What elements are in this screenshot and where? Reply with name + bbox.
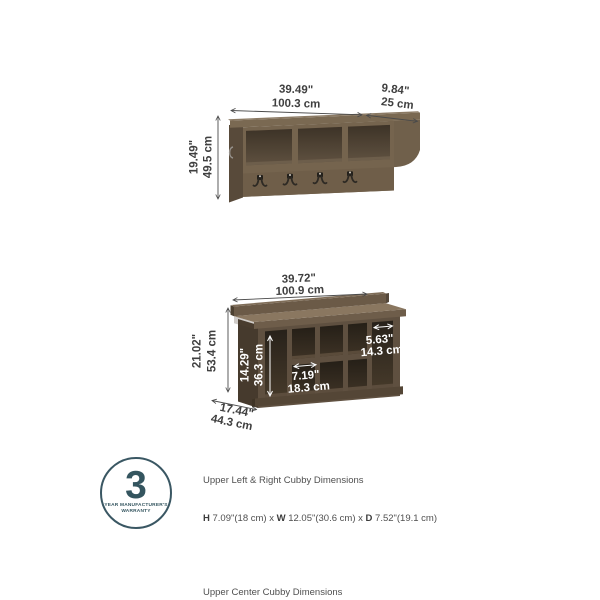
shelf-cubby-right — [348, 125, 390, 161]
shelf-depth-cm: 25 cm — [380, 96, 414, 112]
shelf-back-panel-extension — [394, 120, 420, 167]
shelf-width-dim-line — [231, 111, 362, 115]
spec-detail: H 7.09"(18 cm) x W 12.05"(30.6 cm) x D 7… — [203, 513, 437, 526]
spec-h-label: H — [203, 513, 210, 524]
warranty-years: 3 — [125, 469, 147, 502]
bench-cubby-left-tall — [265, 330, 287, 399]
spec-upper-left-right-cubby: Upper Left & Right Cubby Dimensions H 7.… — [203, 450, 437, 550]
bench-cubby-top-1 — [292, 327, 315, 359]
bench-back-rail-right-cap — [386, 293, 389, 303]
bench-height-cm: 53.4 cm — [207, 330, 219, 372]
bench-cubby-top-2 — [320, 325, 343, 357]
cubby-specifications: Upper Left & Right Cubby Dimensions H 7.… — [203, 450, 437, 600]
warranty-text-line2: WARRANTY — [121, 509, 150, 515]
shelf-side-panel — [229, 124, 243, 203]
bench-height-inches: 21.02" — [192, 334, 204, 368]
product-dimension-diagram: 39.49" 100.3 cm 9.84" 25 cm 19.49" 49.5 … — [0, 0, 600, 600]
shelf-height-cm: 49.5 cm — [203, 136, 215, 178]
shelf-depth-inches: 9.84" — [381, 82, 410, 97]
spec-upper-center-cubby: Upper Center Cubby Dimensions H 7.09"(18… — [203, 562, 437, 600]
shelf-cubby-left — [246, 129, 292, 165]
spec-w-label: W — [277, 513, 286, 524]
spec-h-value: 7.09"(18 cm) x — [210, 513, 277, 524]
shelf-height-inches: 19.49" — [189, 140, 201, 174]
bench-base-molding-return — [252, 399, 255, 408]
bench-width-cm: 100.9 cm — [275, 284, 324, 298]
spec-title: Upper Center Cubby Dimensions — [203, 587, 437, 600]
wall-shelf-illustration — [228, 111, 420, 202]
shelf-width-cm: 100.3 cm — [272, 97, 321, 110]
bench-interior-height-inches: 14.29" — [240, 348, 252, 382]
spec-title: Upper Left & Right Cubby Dimensions — [203, 475, 437, 488]
shelf-width-inches: 39.49" — [279, 84, 314, 97]
bench-interior-height-cm: 36.3 cm — [254, 344, 266, 386]
shelf-cubby-center — [298, 127, 342, 163]
warranty-badge: 3 YEAR MANUFACTURER'S WARRANTY — [100, 457, 172, 529]
spec-w-value: 12.05"(30.6 cm) x — [286, 513, 366, 524]
spec-d-value: 7.52"(19.1 cm) — [372, 513, 437, 524]
bench-back-rail-left-cap — [231, 305, 235, 316]
